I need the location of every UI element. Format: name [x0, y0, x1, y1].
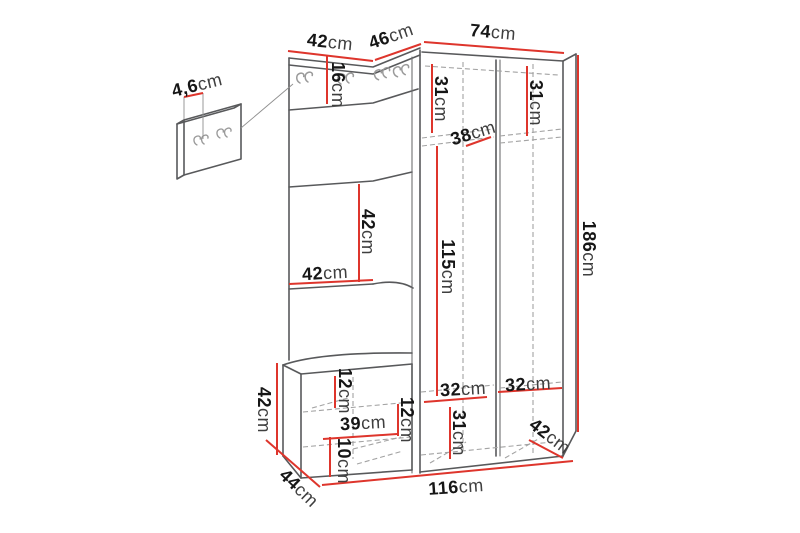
dim-bench-depth: 44cm [275, 465, 322, 511]
dim-total-height: 186cm [579, 221, 599, 278]
furniture-dimension-diagram: 42cm 46cm 74cm 4,6cm 16cm 31cm 31cm 38cm… [0, 0, 800, 533]
dim-base-width: 116cm [428, 475, 485, 499]
coat-hook-icon [297, 72, 313, 83]
coat-hook-icon [217, 128, 231, 138]
coat-hook-icon [194, 135, 208, 145]
dimension-labels: 42cm 46cm 74cm 4,6cm 16cm 31cm 31cm 38cm… [170, 19, 599, 511]
dim-bench-top-gap: 12cm [335, 368, 355, 414]
detail-leader-line [241, 84, 293, 128]
dim-mirror-height: 42cm [358, 209, 378, 255]
dim-upper-left-shelf-height: 31cm [431, 76, 451, 122]
dim-lower-right-shelf-width: 32cm [504, 373, 551, 395]
dim-bench-height: 42cm [254, 387, 274, 433]
dim-middle-inner-height: 115cm [438, 239, 458, 295]
dim-lower-shelf-height: 31cm [449, 410, 469, 456]
coat-hook-icon [393, 64, 410, 77]
diagram-canvas: 42cm 46cm 74cm 4,6cm 16cm 31cm 31cm 38cm… [0, 0, 800, 533]
dim-bench-side-gap: 12cm [397, 397, 417, 443]
coat-hook-icon [374, 67, 391, 80]
dim-bench-bottom-gap: 10cm [334, 438, 354, 484]
dim-top-right-width: 74cm [469, 20, 517, 44]
dim-hook-panel-thickness: 4,6cm [170, 69, 225, 101]
wall-hook-panel-detail [177, 84, 293, 179]
dim-hook-rail-height: 16cm [328, 62, 348, 108]
dim-left-panel-width: 42cm [301, 262, 348, 284]
dim-bench-shelf-width: 39cm [339, 412, 386, 434]
dim-upper-right-shelf-height: 31cm [526, 80, 546, 126]
dim-top-left-width: 42cm [306, 30, 354, 55]
dim-lower-left-shelf-width: 32cm [439, 378, 486, 400]
